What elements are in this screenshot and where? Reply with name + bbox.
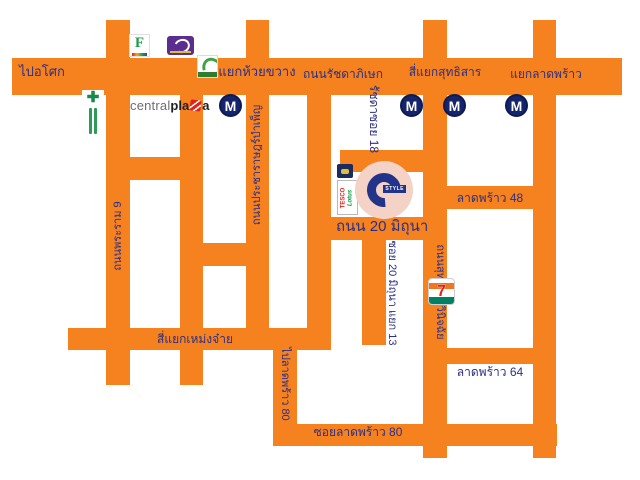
- lotus-text: Lotus: [348, 187, 355, 208]
- road-rung-upper: [106, 157, 203, 180]
- road-east-vertical: [533, 20, 556, 458]
- label-soi-lat-phrao-80: ซอยลาดพร้าว 80: [308, 424, 408, 440]
- fortune-town-logo: F: [129, 34, 150, 57]
- label-meng-jai-intersection: สี่แยกเหม่งจ๋าย: [150, 331, 240, 347]
- label-lat-phrao-48: ลาดพร้าว 48: [452, 190, 528, 206]
- label-to-asok: ไปอโศก: [14, 64, 70, 80]
- mrt-letter: M: [225, 98, 237, 114]
- green-strip: [198, 72, 217, 77]
- mrt-station-icon: M: [400, 94, 423, 117]
- navy-badge-mark: [341, 169, 349, 174]
- mrt-station-icon: M: [505, 94, 528, 117]
- central-plaza-logo: centralplaa: [130, 98, 209, 113]
- esplanade-strip: [170, 51, 191, 53]
- navy-badge-logo: [337, 164, 353, 178]
- label-lat-phrao-junction: แยกลาดพร้าว: [505, 66, 587, 82]
- road-lat-phrao-64: [447, 348, 533, 364]
- label-road-20-mithuna: ถนน 20 มิถุนา: [336, 219, 428, 235]
- style-logo-text: STYLE: [383, 185, 406, 193]
- central-plaza-text-1: central: [130, 98, 170, 113]
- hospital-text-marks: [89, 108, 97, 134]
- central-plaza-text-2: pla: [170, 98, 189, 113]
- label-to-lat-phrao-80: ไปลาดพร้าว 80: [277, 346, 293, 422]
- label-lat-phrao-64: ลาดพร้าว 64: [452, 364, 528, 380]
- map-canvas: ไปอโศก สี่แยกห้วยขวาง ถนนรัชดาภิเษก สี่แ…: [0, 0, 640, 480]
- fortune-color-strip: [132, 53, 147, 56]
- esplanade-logo: [167, 36, 194, 55]
- mrt-letter: M: [449, 98, 461, 114]
- label-sutthisan-intersection: สี่แยกสุทธิสาร: [405, 64, 485, 80]
- label-ratchadaphisek-road: ถนนรัชดาภิเษก: [303, 66, 383, 82]
- label-rama9-road: ถนนพระราม 9: [110, 191, 126, 281]
- praram9-hospital-logo: ✚: [82, 90, 104, 138]
- seven-eleven-digit: 7: [429, 280, 454, 304]
- mrt-letter: M: [511, 98, 523, 114]
- mrt-station-icon: M: [219, 94, 242, 117]
- central-plaza-z-icon: [190, 99, 202, 111]
- seven-eleven-logo: 7: [428, 278, 455, 305]
- mrt-letter: M: [406, 98, 418, 114]
- fortune-letter: F: [130, 35, 149, 52]
- road-soi20-yaek13-vertical: [362, 228, 386, 345]
- mrt-station-icon: M: [443, 94, 466, 117]
- green-mall-logo: [197, 55, 218, 78]
- hospital-cross-icon: ✚: [87, 90, 100, 106]
- label-pracharat-bamphen-road: ถนนประชาราษฎร์บำเพ็ญ: [249, 100, 265, 230]
- label-ratchada-soi-18: รัชดาซอย 18: [366, 84, 382, 154]
- road-rung-lower: [180, 243, 269, 266]
- central-plaza-text-3: a: [202, 98, 209, 113]
- label-soi-20-mithuna-yaek-13: ซอย 20 มิถุนา แยก 13: [384, 240, 400, 346]
- style-destination-logo: STYLE: [355, 161, 413, 219]
